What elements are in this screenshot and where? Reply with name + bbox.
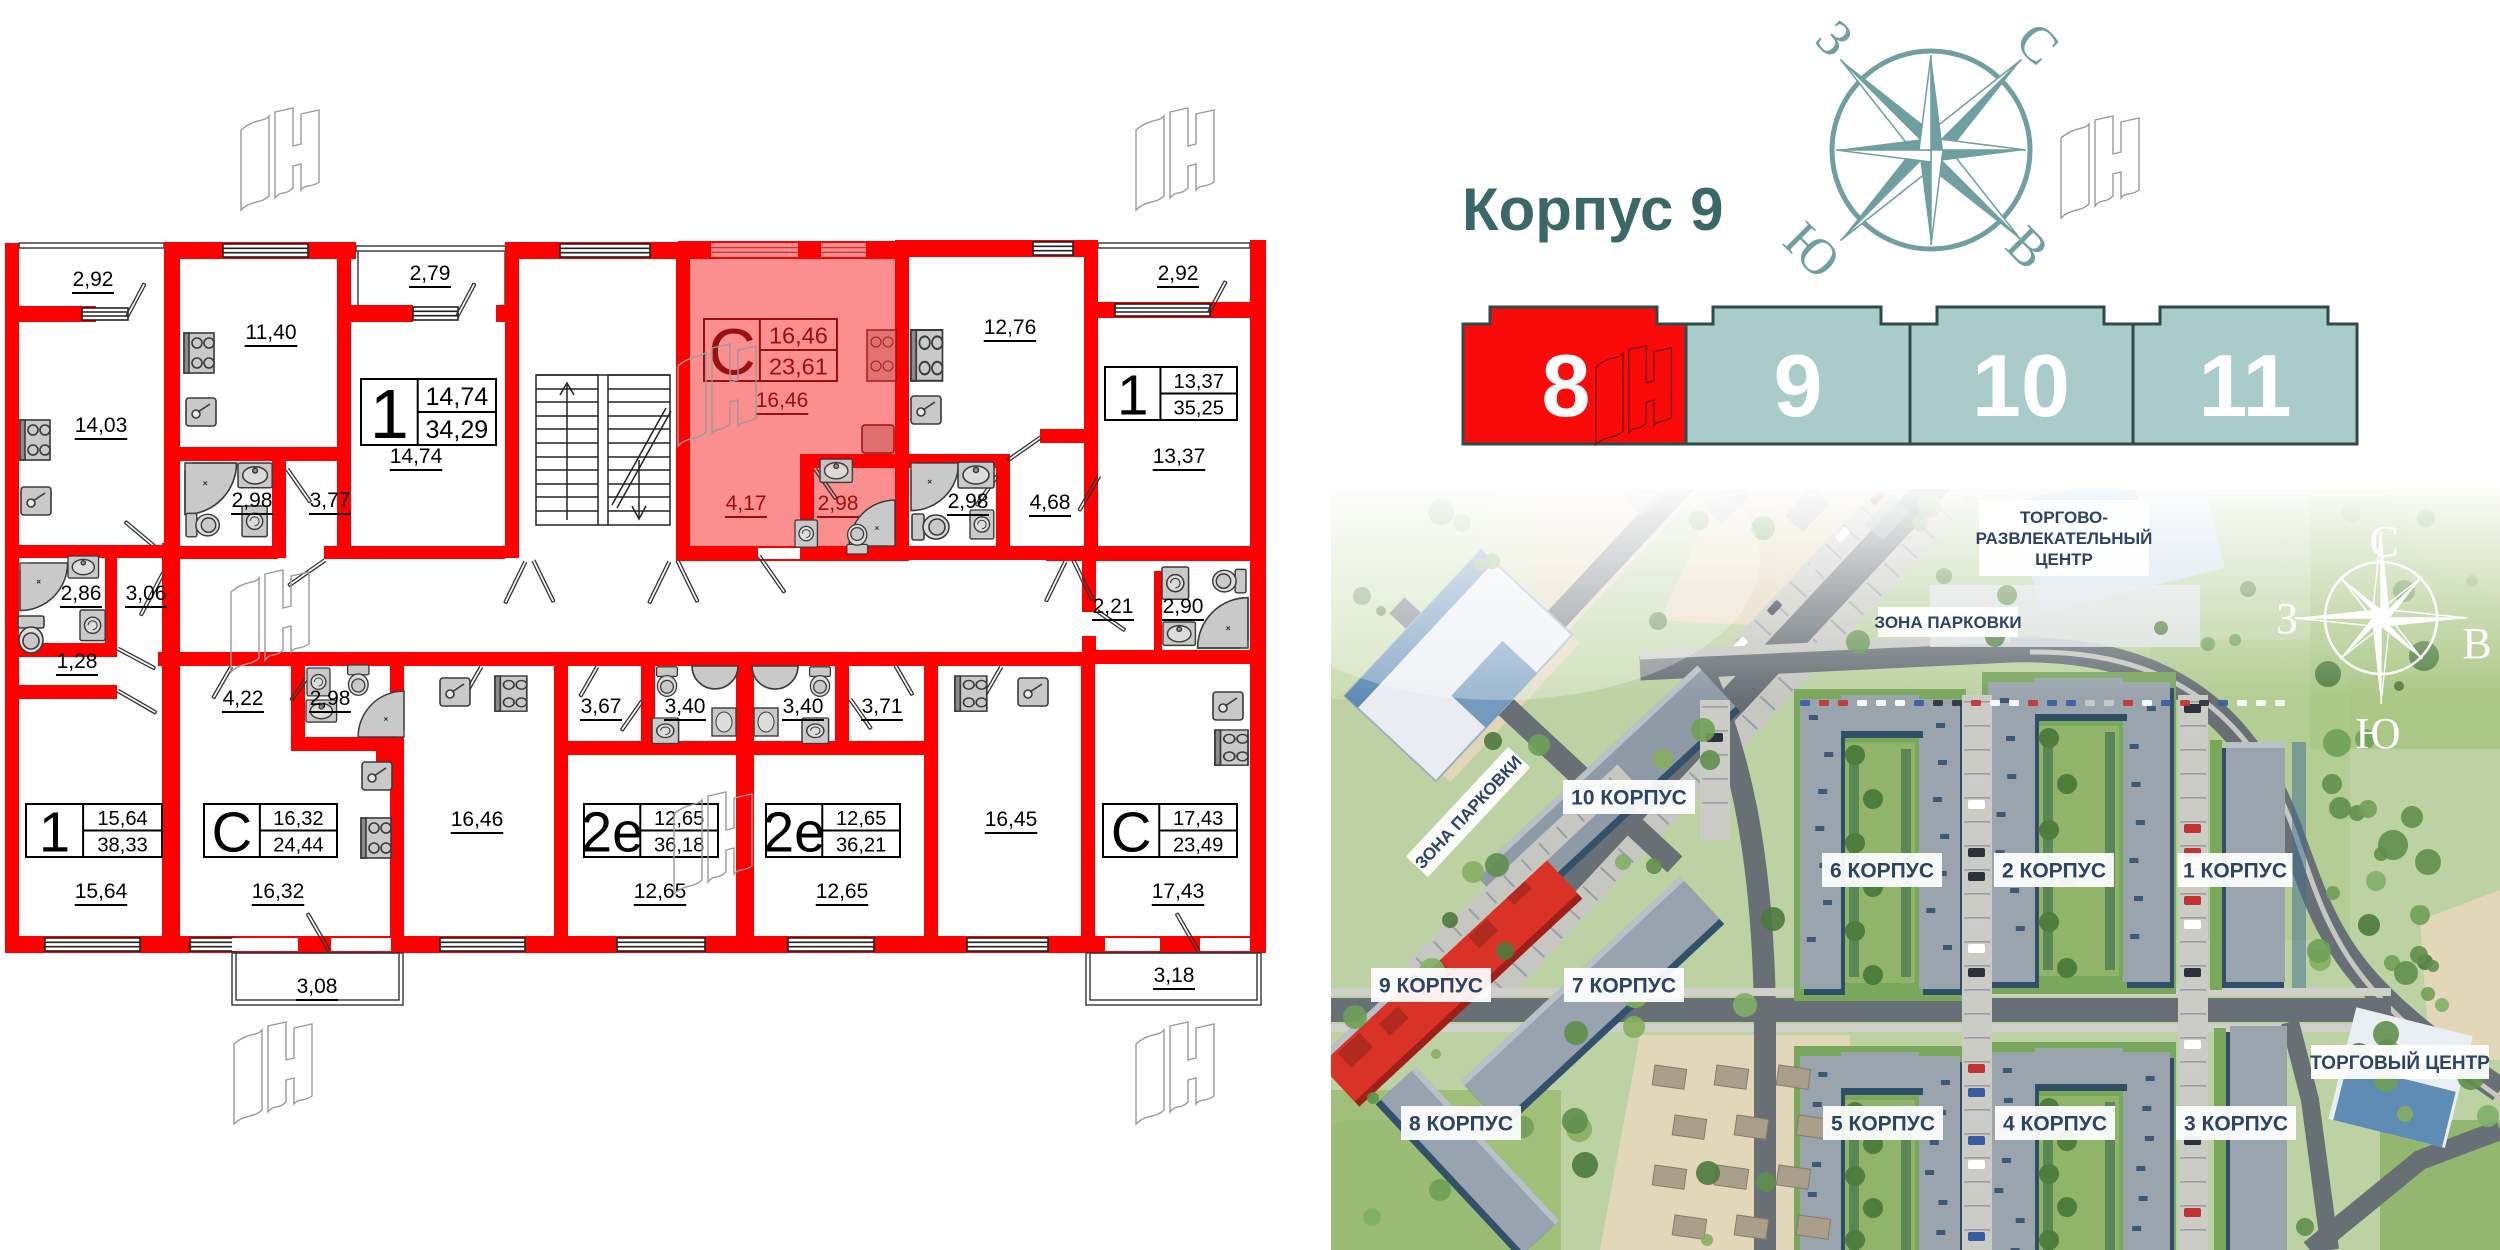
svg-text:2,98: 2,98 [948, 490, 989, 513]
svg-text:3,40: 3,40 [783, 695, 824, 718]
svg-text:23,61: 23,61 [769, 353, 828, 379]
svg-text:ЗОНА ПАРКОВКИ: ЗОНА ПАРКОВКИ [1874, 613, 2021, 632]
svg-text:14,74: 14,74 [425, 383, 488, 411]
svg-text:4,17: 4,17 [726, 492, 767, 515]
svg-text:16,32: 16,32 [273, 808, 323, 830]
svg-text:2,92: 2,92 [1158, 262, 1199, 285]
svg-text:В: В [2462, 619, 2491, 668]
svg-text:С: С [1111, 800, 1152, 863]
svg-text:8 КОРПУС: 8 КОРПУС [1409, 1113, 1513, 1136]
svg-text:2,98: 2,98 [310, 687, 351, 710]
svg-text:9 КОРПУС: 9 КОРПУС [1379, 975, 1483, 998]
svg-text:2,92: 2,92 [73, 268, 114, 291]
svg-text:2,98: 2,98 [232, 489, 273, 512]
svg-text:16,46: 16,46 [769, 322, 828, 348]
svg-text:13,37: 13,37 [1153, 445, 1206, 468]
svg-text:3 КОРПУС: 3 КОРПУС [2184, 1113, 2288, 1136]
svg-text:34,29: 34,29 [425, 416, 488, 444]
svg-text:2,79: 2,79 [410, 262, 451, 285]
svg-text:6 КОРПУС: 6 КОРПУС [1830, 860, 1934, 883]
svg-text:9: 9 [1774, 336, 1823, 435]
svg-text:10: 10 [1972, 336, 2070, 435]
svg-text:Ю: Ю [1773, 212, 1851, 290]
svg-text:ЦЕНТР: ЦЕНТР [2035, 550, 2093, 569]
svg-text:12,65: 12,65 [634, 880, 687, 903]
svg-text:16,45: 16,45 [985, 808, 1038, 831]
svg-text:РАЗВЛЕКАТЕЛЬНЫЙ: РАЗВЛЕКАТЕЛЬНЫЙ [1976, 529, 2153, 548]
svg-text:3,77: 3,77 [310, 489, 351, 512]
svg-text:1: 1 [39, 800, 70, 863]
svg-text:36,18: 36,18 [654, 834, 704, 856]
svg-text:12,65: 12,65 [816, 880, 869, 903]
svg-text:С: С [708, 315, 755, 388]
svg-text:12,65: 12,65 [654, 808, 704, 830]
svg-text:2 КОРПУС: 2 КОРПУС [2002, 860, 2106, 883]
svg-text:3,71: 3,71 [862, 695, 903, 718]
svg-text:38,33: 38,33 [97, 834, 147, 856]
svg-text:17,43: 17,43 [1152, 880, 1205, 903]
svg-text:4,68: 4,68 [1030, 491, 1071, 514]
svg-text:14,03: 14,03 [75, 414, 128, 437]
svg-text:3,18: 3,18 [1154, 964, 1195, 987]
svg-text:1 КОРПУС: 1 КОРПУС [2183, 860, 2287, 883]
svg-text:С: С [2369, 517, 2398, 566]
svg-text:1: 1 [370, 375, 409, 453]
svg-text:12,65: 12,65 [836, 808, 886, 830]
svg-text:З: З [1805, 10, 1864, 69]
svg-text:11: 11 [2198, 336, 2291, 435]
svg-text:2,86: 2,86 [61, 582, 102, 605]
svg-text:3,40: 3,40 [665, 695, 706, 718]
svg-text:2,98: 2,98 [818, 492, 859, 515]
svg-text:З: З [2276, 594, 2298, 643]
svg-text:Ю: Ю [2355, 709, 2400, 758]
svg-text:16,46: 16,46 [756, 389, 809, 412]
svg-text:15,64: 15,64 [75, 880, 128, 903]
svg-text:3,08: 3,08 [297, 975, 338, 998]
svg-text:5 КОРПУС: 5 КОРПУС [1831, 1113, 1935, 1136]
svg-text:Корпус 9: Корпус 9 [1462, 176, 1723, 243]
svg-text:17,43: 17,43 [1173, 808, 1223, 830]
svg-text:16,32: 16,32 [252, 880, 305, 903]
svg-text:2,21: 2,21 [1093, 595, 1134, 618]
svg-text:4,22: 4,22 [223, 687, 264, 710]
svg-text:7 КОРПУС: 7 КОРПУС [1572, 975, 1676, 998]
svg-text:2,90: 2,90 [1163, 595, 1204, 618]
svg-text:16,46: 16,46 [451, 808, 504, 831]
svg-text:3,06: 3,06 [126, 582, 167, 605]
svg-text:12,76: 12,76 [984, 316, 1037, 339]
svg-text:14,74: 14,74 [390, 445, 443, 468]
svg-text:С: С [212, 800, 253, 863]
svg-text:13,37: 13,37 [1174, 371, 1224, 393]
svg-text:1,28: 1,28 [57, 650, 98, 673]
svg-text:ТОРГОВЫЙ ЦЕНТР: ТОРГОВЫЙ ЦЕНТР [2310, 1052, 2490, 1074]
svg-text:23,49: 23,49 [1173, 834, 1223, 856]
svg-text:35,25: 35,25 [1174, 397, 1224, 419]
svg-text:2е: 2е [763, 800, 825, 863]
svg-text:3,67: 3,67 [581, 695, 622, 718]
svg-text:24,44: 24,44 [273, 834, 323, 856]
svg-text:4 КОРПУС: 4 КОРПУС [2003, 1113, 2107, 1136]
svg-text:11,40: 11,40 [246, 321, 297, 344]
svg-text:8: 8 [1542, 336, 1591, 435]
svg-text:36,21: 36,21 [836, 834, 886, 856]
svg-text:2е: 2е [581, 800, 643, 863]
svg-text:15,64: 15,64 [97, 808, 147, 830]
svg-text:1: 1 [1117, 363, 1148, 426]
svg-text:ТОРГОВО-: ТОРГОВО- [2020, 508, 2108, 527]
svg-text:10 КОРПУС: 10 КОРПУС [1571, 787, 1687, 810]
